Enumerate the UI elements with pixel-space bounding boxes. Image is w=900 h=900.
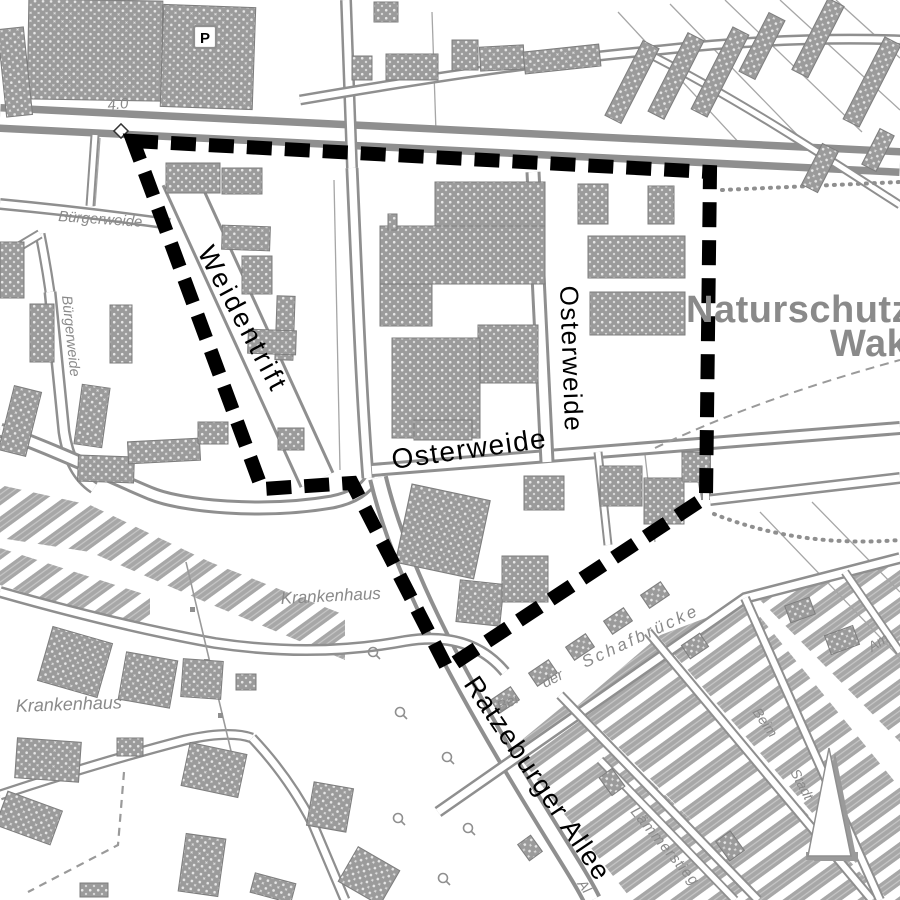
area-label-naturschutz-line2: Wak <box>830 323 900 365</box>
street-label-osterweide-v: Osterweide <box>554 285 589 432</box>
elevation-label: 4.0 <box>107 95 130 114</box>
map-canvas: P Weidentrift Osterweide Osterweide Ratz… <box>0 0 900 900</box>
fence-post <box>218 713 223 718</box>
parking-symbol: P <box>194 26 216 48</box>
fence-post <box>190 607 195 612</box>
map-page: P Weidentrift Osterweide Osterweide Ratz… <box>0 0 900 900</box>
area-label-krankenhaus-bottom: Krankenhaus <box>15 692 122 716</box>
parking-letter: P <box>200 30 210 47</box>
